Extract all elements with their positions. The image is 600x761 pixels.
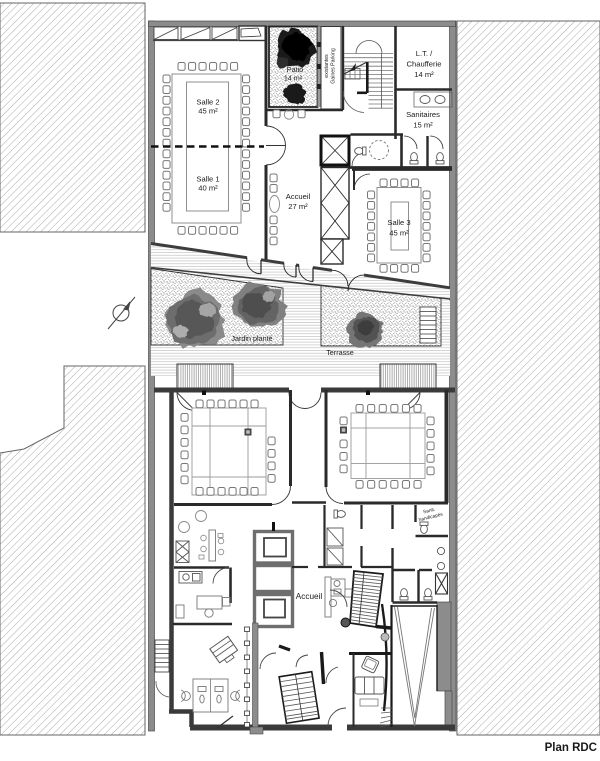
svg-text:Salle 3: Salle 3 <box>387 218 410 227</box>
svg-text:Chaufferie: Chaufferie <box>407 60 442 69</box>
svg-text:Salle 1: Salle 1 <box>196 175 219 184</box>
svg-text:Gaines Parking: Gaines Parking <box>331 48 337 84</box>
svg-text:14 m²: 14 m² <box>284 74 303 83</box>
svg-text:existantes: existantes <box>324 54 330 78</box>
svg-text:Salle 2: Salle 2 <box>196 98 219 107</box>
svg-text:Jardin planté: Jardin planté <box>231 334 272 343</box>
svg-text:14 m²: 14 m² <box>414 70 434 79</box>
svg-text:L.T. /: L.T. / <box>416 49 433 58</box>
svg-text:Sanitaires: Sanitaires <box>406 110 440 119</box>
svg-text:Plan RDC: Plan RDC <box>545 742 597 754</box>
svg-text:45 m²: 45 m² <box>389 229 409 238</box>
svg-text:15 m²: 15 m² <box>413 121 433 130</box>
svg-text:Terrasse: Terrasse <box>326 348 354 357</box>
svg-text:45 m²: 45 m² <box>198 107 218 116</box>
svg-text:40 m²: 40 m² <box>198 184 218 193</box>
svg-text:27 m²: 27 m² <box>288 202 308 211</box>
svg-text:Accueil: Accueil <box>296 592 323 601</box>
svg-text:Accueil: Accueil <box>286 192 311 201</box>
